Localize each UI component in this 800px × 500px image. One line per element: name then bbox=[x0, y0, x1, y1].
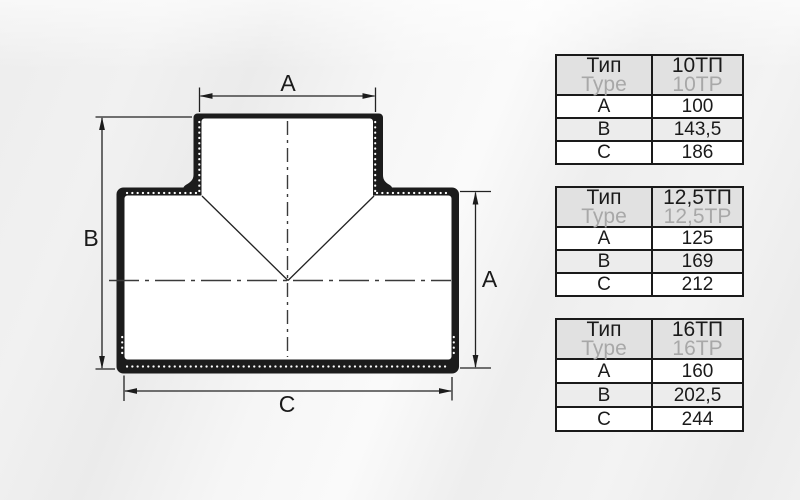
svg-text:A: A bbox=[280, 70, 296, 96]
svg-text:B: B bbox=[83, 225, 98, 251]
svg-text:A: A bbox=[482, 266, 498, 292]
svg-text:C: C bbox=[279, 391, 296, 417]
